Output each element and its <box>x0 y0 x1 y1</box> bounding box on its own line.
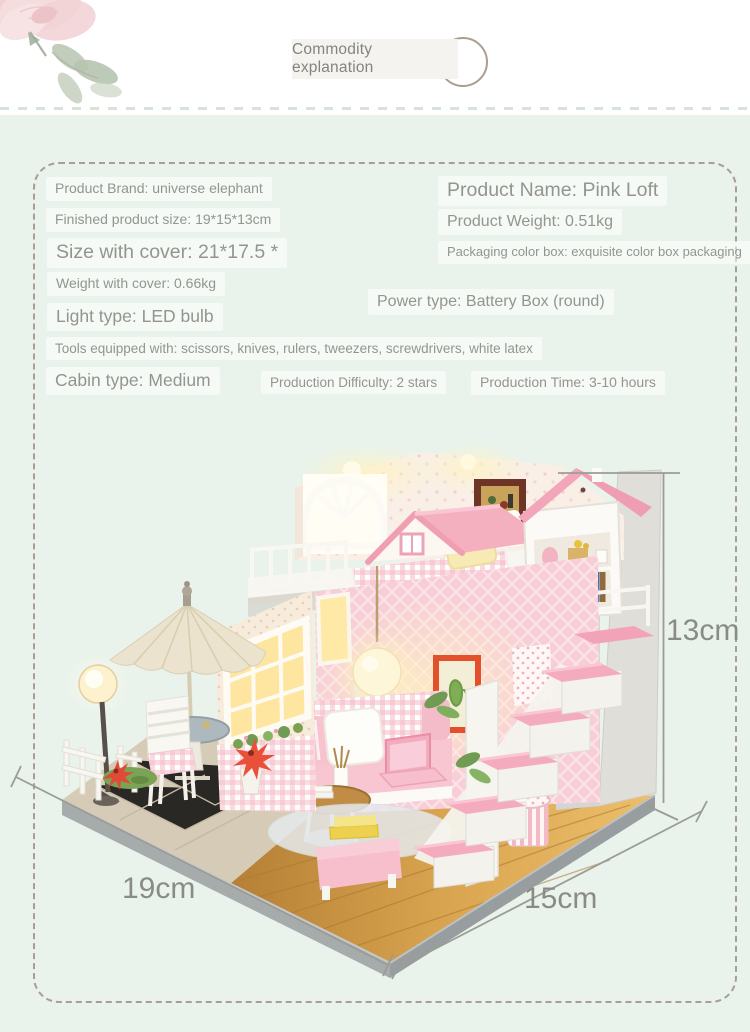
spec-time: Production Time: 3-10 hours <box>471 371 665 395</box>
dimension-width-label: 19cm <box>122 872 195 906</box>
spec-difficulty: Production Difficulty: 2 stars <box>261 371 446 394</box>
spec-cabin-type: Cabin type: Medium <box>46 367 220 395</box>
page: Commodity explanation Product Brand: uni… <box>0 0 750 1032</box>
product-image-dollhouse <box>0 420 750 1000</box>
spec-product-name: Product Name: Pink Loft <box>438 176 667 206</box>
spec-packaging: Packaging color box: exquisite color box… <box>438 241 750 264</box>
page-title-label: Commodity explanation <box>292 41 458 77</box>
page-title: Commodity explanation <box>292 39 458 79</box>
dimension-height-label: 13cm <box>666 614 739 648</box>
dimension-depth-label: 15cm <box>524 882 597 916</box>
dotted-separator <box>0 107 750 110</box>
spec-size-with-cover: Size with cover: 21*17.5 * <box>47 238 287 268</box>
spec-product-weight: Product Weight: 0.51kg <box>438 209 622 235</box>
spec-finished-size: Finished product size: 19*15*13cm <box>46 208 280 232</box>
rose-icon <box>0 0 150 115</box>
spec-light-type: Light type: LED bulb <box>47 303 223 331</box>
left-exterior-wall <box>216 590 316 812</box>
spec-brand: Product Brand: universe elephant <box>46 177 272 201</box>
spec-tools: Tools equipped with: scissors, knives, r… <box>46 337 542 360</box>
spec-power: Power type: Battery Box (round) <box>368 289 614 315</box>
spec-weight-with-cover: Weight with cover: 0.66kg <box>47 272 225 296</box>
